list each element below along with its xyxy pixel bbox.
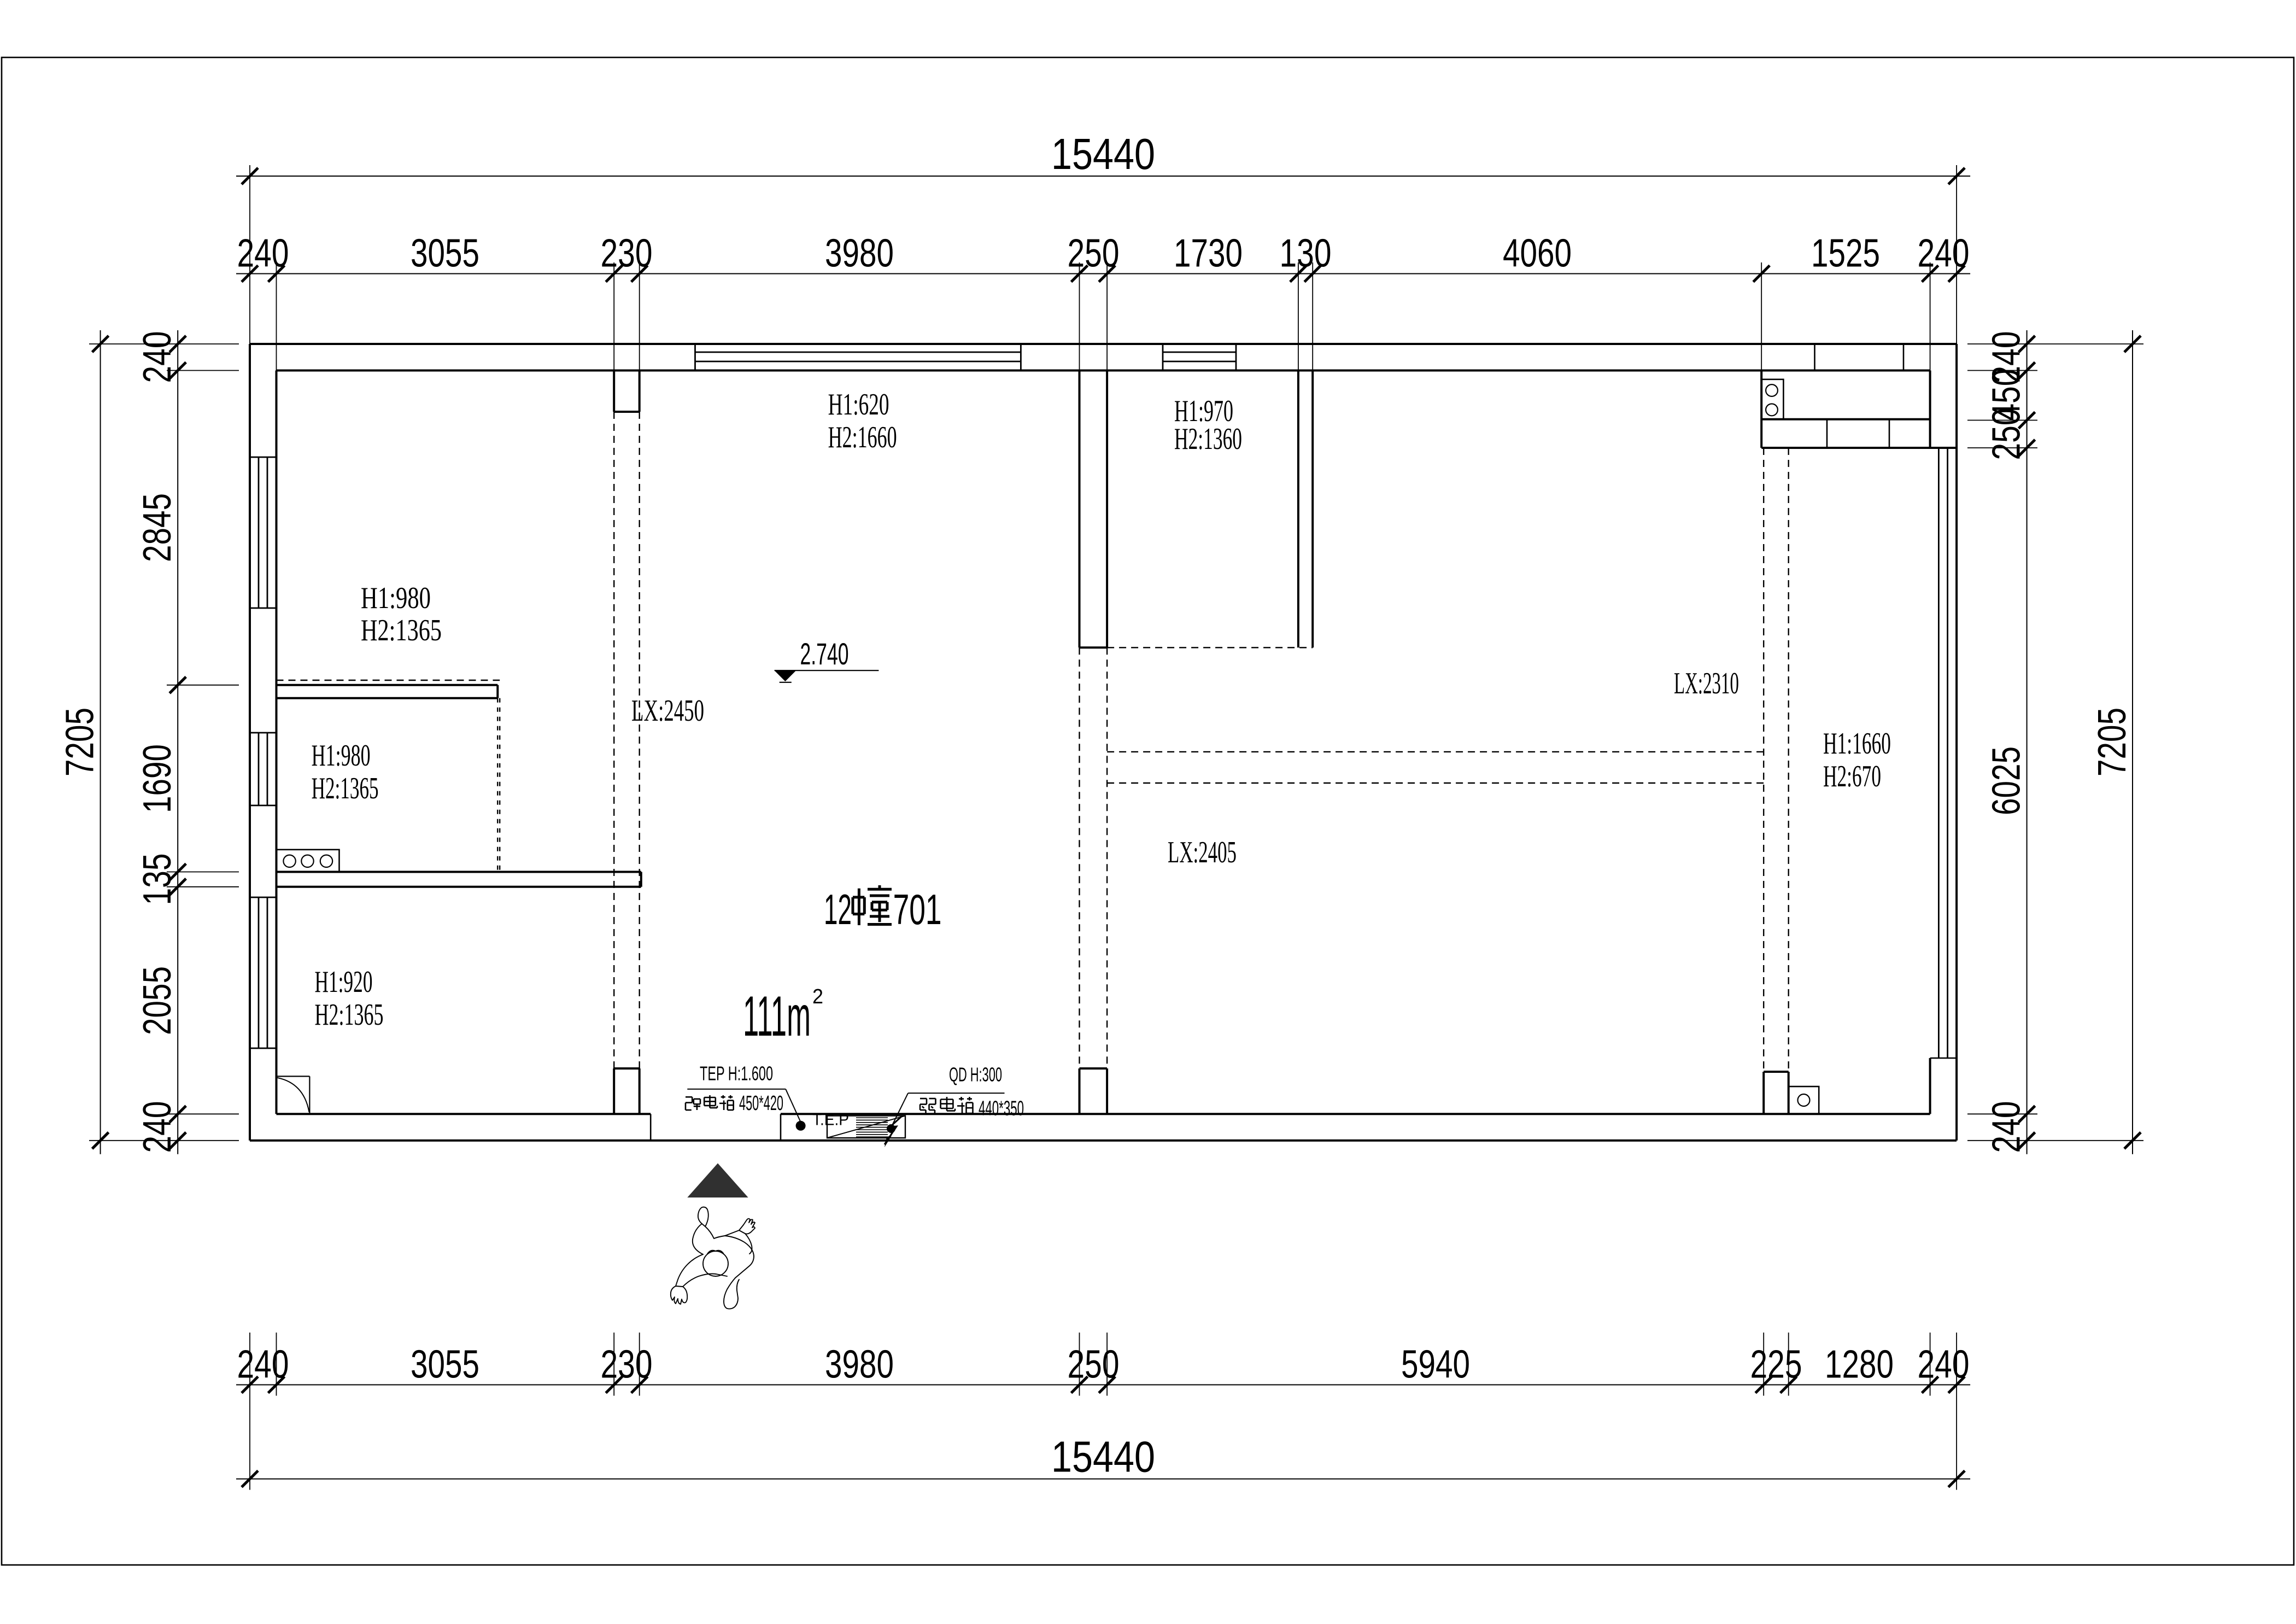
svg-text:240: 240 [237, 1343, 289, 1387]
svg-text:3055: 3055 [411, 1343, 479, 1387]
svg-text:701: 701 [893, 885, 942, 933]
svg-text:H2:1365: H2:1365 [361, 614, 442, 647]
svg-text:240: 240 [1918, 1343, 1970, 1387]
svg-text:H1:620: H1:620 [828, 388, 889, 422]
svg-text:H1:980: H1:980 [361, 581, 431, 615]
svg-text:1525: 1525 [1811, 232, 1880, 276]
svg-text:LX:2450: LX:2450 [631, 694, 704, 728]
svg-text:T.E.P: T.E.P [812, 1111, 849, 1129]
svg-text:12: 12 [824, 885, 852, 933]
svg-text:3980: 3980 [825, 232, 894, 276]
svg-text:H1:980: H1:980 [312, 739, 371, 773]
svg-text:H2:1660: H2:1660 [828, 420, 897, 454]
svg-text:7205: 7205 [58, 708, 102, 776]
svg-text:H1:1660: H1:1660 [1823, 727, 1891, 761]
svg-text:H2:670: H2:670 [1823, 760, 1881, 793]
svg-text:1690: 1690 [136, 744, 179, 813]
svg-text:15440: 15440 [1051, 130, 1155, 178]
svg-text:111m: 111m [743, 985, 811, 1048]
svg-text:TEP H:1.600: TEP H:1.600 [700, 1062, 773, 1085]
svg-text:240: 240 [1985, 1101, 2029, 1153]
svg-text:6025: 6025 [1985, 746, 2029, 815]
svg-text:230: 230 [601, 232, 653, 276]
svg-text:H1:920: H1:920 [315, 965, 373, 999]
svg-text:230: 230 [601, 1343, 653, 1387]
svg-text:H2:1360: H2:1360 [1174, 422, 1242, 456]
svg-text:H2:1365: H2:1365 [312, 772, 379, 805]
svg-text:2845: 2845 [136, 493, 179, 562]
svg-text:130: 130 [1280, 232, 1332, 276]
svg-text:250: 250 [1985, 408, 2029, 460]
svg-text:2055: 2055 [136, 966, 179, 1035]
svg-text:2.740: 2.740 [800, 636, 849, 671]
svg-text:LX:2310: LX:2310 [1674, 667, 1739, 700]
svg-text:QD H:300: QD H:300 [949, 1063, 1002, 1085]
svg-text:7205: 7205 [2090, 708, 2134, 776]
svg-text:1280: 1280 [1825, 1343, 1894, 1387]
svg-text:5940: 5940 [1401, 1343, 1470, 1387]
svg-text:240: 240 [136, 331, 179, 383]
svg-text:LX:2405: LX:2405 [1168, 836, 1237, 869]
svg-text:450*420: 450*420 [739, 1092, 783, 1115]
svg-text:440*350: 440*350 [979, 1097, 1024, 1120]
svg-text:1730: 1730 [1174, 232, 1243, 276]
svg-text:2: 2 [812, 985, 823, 1008]
svg-text:135: 135 [136, 854, 179, 906]
svg-text:240: 240 [1918, 232, 1970, 276]
svg-text:3980: 3980 [825, 1343, 894, 1387]
svg-text:4060: 4060 [1503, 232, 1572, 276]
svg-text:250: 250 [1068, 232, 1120, 276]
svg-text:240: 240 [237, 232, 289, 276]
svg-text:225: 225 [1750, 1343, 1802, 1387]
svg-text:15440: 15440 [1051, 1433, 1155, 1481]
svg-text:3055: 3055 [411, 232, 479, 276]
svg-text:240: 240 [136, 1101, 179, 1153]
svg-text:H2:1365: H2:1365 [315, 998, 384, 1032]
svg-text:250: 250 [1068, 1343, 1120, 1387]
